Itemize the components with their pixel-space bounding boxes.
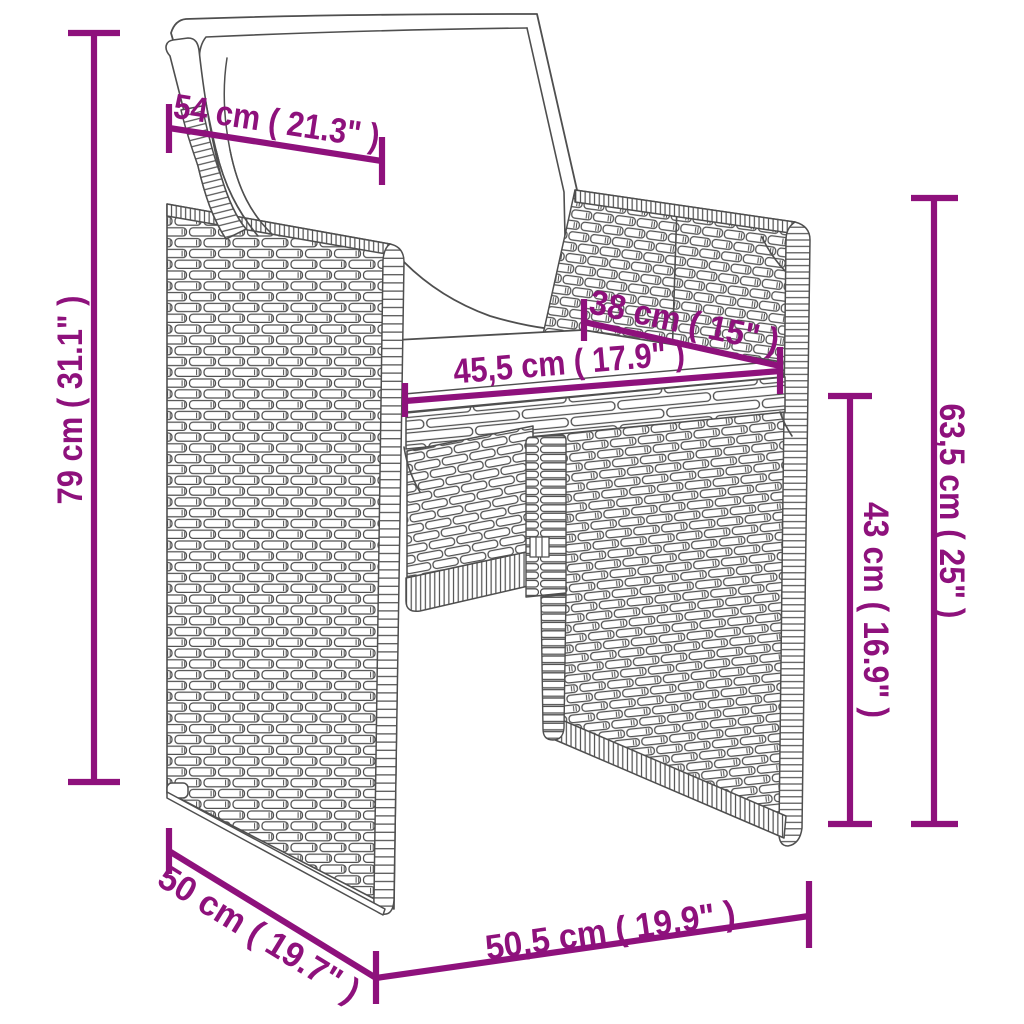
- svg-text:63,5 cm ( 25" ): 63,5 cm ( 25" ): [932, 404, 971, 619]
- svg-text:43 cm ( 16.9" ): 43 cm ( 16.9" ): [856, 502, 895, 718]
- svg-text:79 cm ( 31.1" ): 79 cm ( 31.1" ): [51, 296, 90, 505]
